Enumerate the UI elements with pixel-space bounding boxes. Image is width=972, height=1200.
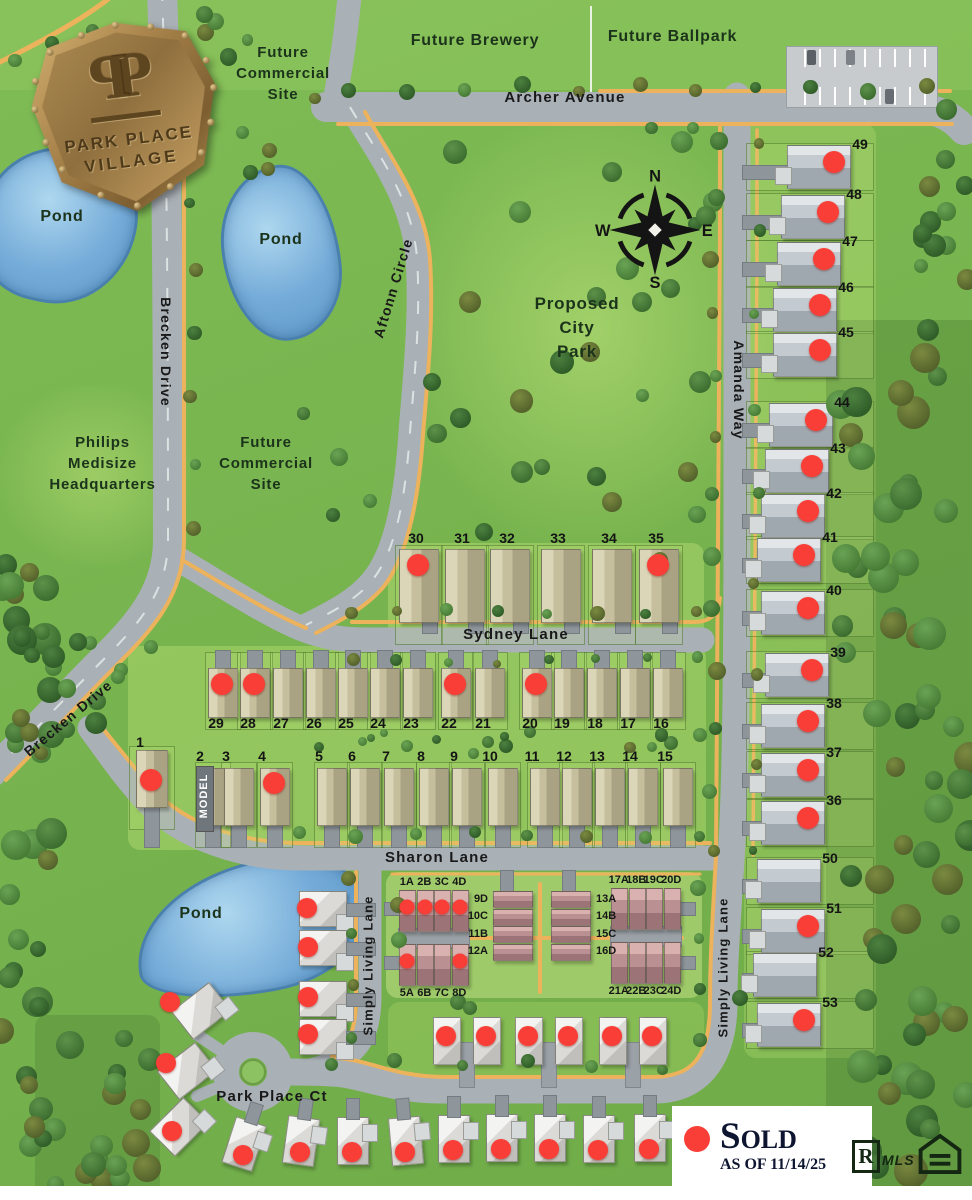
tree [58, 679, 77, 698]
tree [346, 1032, 357, 1043]
tree [122, 1129, 150, 1157]
lot-number: 17 [620, 715, 636, 731]
lot-number: 1 [136, 734, 144, 750]
condo-unit-label: 6B [417, 987, 431, 999]
tree [908, 986, 938, 1016]
sold-dot [435, 900, 450, 915]
tree [458, 83, 471, 96]
tree [710, 370, 722, 382]
sold-dot [797, 759, 819, 781]
tree [910, 343, 940, 373]
area-label-philips-medisize: Philips Medisize Headquarters [10, 432, 195, 495]
tree [347, 653, 360, 666]
lot-house [554, 668, 584, 718]
tree [187, 326, 202, 341]
area-label-future-ballpark: Future Ballpark [595, 26, 750, 48]
condo-unit-label: 4D [452, 876, 466, 888]
condo-unit [646, 942, 663, 984]
home-driveway [346, 1098, 360, 1120]
tree [708, 845, 720, 857]
tree [840, 865, 862, 887]
tree [186, 521, 201, 536]
logo-rivet [77, 31, 85, 39]
tree [367, 734, 375, 742]
lot-house [753, 953, 817, 997]
compass-rose: N E S W [595, 168, 715, 292]
tree [401, 740, 413, 752]
condo-unit-label: 7C [435, 987, 449, 999]
lot-number: 40 [826, 582, 842, 598]
condo-unit-label: 15C [596, 928, 616, 940]
lot-house [338, 668, 368, 718]
tree [36, 818, 67, 849]
house-wing [745, 881, 762, 899]
lot-number: 45 [838, 324, 854, 340]
sold-dot [558, 1026, 578, 1046]
tree [468, 748, 479, 759]
sold-dot [801, 659, 823, 681]
street-label-archer-avenue: Archer Avenue [495, 89, 635, 106]
sold-dot [817, 201, 839, 223]
street-label-sharon-lane: Sharon Lane [367, 849, 507, 866]
tree [694, 983, 706, 995]
tree [916, 684, 941, 709]
house-wing [761, 355, 778, 373]
sold-dot [298, 937, 318, 957]
lot-number: 8 [417, 748, 425, 764]
lot-house [384, 768, 414, 826]
sold-dot [156, 1053, 176, 1073]
tree [693, 728, 707, 742]
site-map: Future Commercial Site Future Brewery Fu… [0, 0, 972, 1200]
tree [509, 201, 531, 223]
condo-unit-label: 2B [417, 876, 431, 888]
lot-number: 6 [348, 748, 356, 764]
model-home-label: MODEL [198, 770, 210, 822]
street-label-amanda-way: Amanda Way [731, 330, 747, 450]
tree [803, 80, 818, 95]
realtor-logo: R [852, 1140, 880, 1173]
tree [326, 508, 340, 522]
tree [936, 99, 957, 120]
tree [24, 648, 40, 664]
tree [262, 143, 277, 158]
compass-s: S [650, 274, 661, 292]
sold-dot [805, 409, 827, 431]
lot-number: 26 [306, 715, 322, 731]
lot-house [595, 768, 625, 826]
legend-sold-dot [684, 1126, 710, 1152]
lot-house [403, 668, 433, 718]
lot-number: 52 [818, 944, 834, 960]
lot-house [350, 768, 380, 826]
tree [925, 771, 944, 790]
tree [936, 150, 955, 169]
lot-house [224, 768, 254, 826]
tree [754, 224, 766, 236]
house-wing [745, 560, 762, 578]
house-wing [769, 217, 786, 235]
lot-number: 30 [408, 530, 424, 546]
lot-number: 2 [196, 748, 204, 764]
tree [947, 769, 972, 799]
tree [690, 880, 706, 896]
tree [880, 612, 907, 639]
legend-sold-label: Sold [720, 1118, 826, 1157]
lot-house [370, 668, 400, 718]
street-label-sydney-lane: Sydney Lane [446, 626, 586, 643]
tree [919, 78, 935, 94]
lot-number: 46 [838, 279, 854, 295]
tree [924, 794, 953, 823]
lot-number: 49 [852, 136, 868, 152]
condo-unit-label: 9D [474, 893, 488, 905]
condo-driveway [680, 902, 696, 916]
sold-dot [452, 954, 467, 969]
lot-number: 10 [482, 748, 498, 764]
area-label-future-brewery: Future Brewery [400, 30, 550, 52]
tree [0, 967, 20, 988]
tree [510, 389, 534, 413]
tree [12, 709, 30, 727]
house-wing [761, 310, 778, 328]
condo-driveway [384, 956, 400, 970]
sold-dot [602, 1026, 622, 1046]
sold-dot [793, 1009, 815, 1031]
lot-number: 33 [550, 530, 566, 546]
sold-dot [417, 900, 432, 915]
tree [133, 1154, 160, 1181]
sold-dot [518, 1026, 538, 1046]
house-wing [749, 931, 766, 949]
tree [106, 1155, 127, 1176]
tree [144, 640, 158, 654]
parcel-divider [590, 6, 592, 92]
sold-dot [395, 1142, 415, 1162]
tree [913, 617, 946, 650]
condo-unit [629, 942, 646, 984]
street-label-simply-living-lane-east: Simply Living Lane [716, 893, 731, 1043]
lot-driveway [144, 804, 160, 848]
tree [463, 1001, 477, 1015]
condo-unit [664, 888, 681, 930]
sold-dot [162, 1121, 182, 1141]
sold-dot [491, 1139, 511, 1159]
tree [363, 494, 377, 508]
lot-number: 11 [525, 748, 540, 764]
logo-rivet [147, 23, 155, 31]
tree [636, 389, 649, 402]
lot-house [530, 768, 560, 826]
lot-number: 47 [842, 233, 858, 249]
house-wing [749, 775, 766, 793]
area-label-pond-southwest: Pond [166, 903, 236, 925]
tree [348, 829, 363, 844]
tree [29, 997, 49, 1017]
car [807, 50, 816, 65]
tree [521, 830, 533, 842]
lot-house [488, 768, 518, 826]
condo-unit [493, 909, 533, 926]
area-label-future-commercial-west: Future Commercial Site [196, 432, 336, 495]
sold-dot [797, 500, 819, 522]
lot-house [452, 768, 482, 826]
lot-number: 7 [382, 748, 390, 764]
tree [236, 126, 249, 139]
tree [643, 653, 652, 662]
lot-house [475, 668, 505, 718]
condo-unit [493, 926, 533, 943]
tree [913, 841, 940, 868]
condo-unit-label: 11B [468, 928, 488, 940]
condo-unit [434, 944, 451, 986]
tree [913, 224, 932, 243]
tree [953, 1082, 972, 1107]
lot-number: 39 [830, 644, 846, 660]
condo-unit [646, 888, 663, 930]
lot-house [273, 668, 303, 718]
tree [427, 424, 447, 444]
tree [848, 443, 875, 470]
sold-dot [813, 248, 835, 270]
sold-dot [342, 1142, 362, 1162]
street-label-brecken-drive-north: Brecken Drive [158, 292, 174, 412]
tree [707, 307, 718, 318]
lot-house [562, 768, 592, 826]
house-wing [413, 1122, 431, 1141]
tree [42, 645, 65, 668]
car [885, 89, 894, 104]
sold-dot [476, 1026, 496, 1046]
tree [943, 716, 964, 737]
tree [130, 1099, 151, 1120]
tree [459, 291, 481, 313]
sold-dot [436, 1026, 456, 1046]
condo-unit-label: 20D [661, 874, 681, 886]
tree [410, 828, 422, 840]
tree [863, 700, 890, 727]
condo-unit [551, 926, 591, 943]
condo-unit [493, 891, 533, 908]
lot-number: 37 [826, 744, 842, 760]
tree [85, 712, 107, 734]
tree [542, 609, 552, 619]
condo-unit-label: 1A [400, 876, 414, 888]
lot-number: 25 [338, 715, 354, 731]
lot-number: 13 [589, 748, 605, 764]
tree [832, 544, 861, 573]
car [846, 50, 855, 65]
condo-unit-label: 3C [435, 876, 449, 888]
sold-dot [444, 673, 466, 695]
lot-house [620, 668, 650, 718]
condo-unit-label: 5A [400, 987, 414, 999]
sold-dot [452, 900, 467, 915]
tree [387, 1053, 402, 1068]
logo-rivet [31, 77, 39, 85]
tree [703, 547, 721, 565]
lot-house [628, 768, 658, 826]
lot-house [663, 768, 693, 826]
tree [585, 1060, 598, 1073]
condo-unit-label: 13A [596, 893, 616, 905]
tree [38, 850, 58, 870]
lot-number: 4 [258, 748, 266, 764]
tree [443, 140, 467, 164]
home-driveway [447, 1096, 461, 1118]
lot-number: 5 [315, 748, 323, 764]
lot-number: 3 [222, 748, 230, 764]
sold-dot [793, 544, 815, 566]
home-driveway [643, 1095, 657, 1117]
tree [493, 660, 501, 668]
sold-dot [823, 151, 845, 173]
condo-unit-label: 16D [596, 945, 616, 957]
lot-number: 28 [240, 715, 256, 731]
legend-as-of-date: AS OF 11/14/25 [720, 1156, 826, 1174]
lot-number: 44 [834, 394, 850, 410]
tree [688, 506, 705, 523]
lot-number: 9 [450, 748, 458, 764]
tree [691, 606, 702, 617]
compass-e: E [702, 222, 713, 240]
lot-number: 34 [601, 530, 617, 546]
sold-dot [525, 673, 547, 695]
lot-house [317, 768, 347, 826]
park-place-village-logo: PP PARK PLACE VILLAGE [23, 11, 229, 222]
tree [647, 742, 657, 752]
sold-dot [797, 710, 819, 732]
street-label-park-place-ct: Park Place Ct [202, 1088, 342, 1105]
tree [710, 431, 721, 442]
tree [941, 915, 960, 934]
lot-number: 21 [475, 715, 491, 731]
tree [865, 865, 894, 894]
lot-number: 16 [653, 715, 669, 731]
sold-dot [443, 1140, 463, 1160]
area-label-pond-central: Pond [246, 229, 316, 251]
tree [500, 732, 508, 740]
lot-number: 31 [454, 530, 470, 546]
lot-house [306, 668, 336, 718]
condo-unit [417, 944, 434, 986]
tree [645, 122, 658, 135]
tree [956, 176, 972, 194]
tree [391, 932, 407, 948]
lot-number: 51 [826, 900, 842, 916]
home-driveway [395, 1098, 411, 1121]
lot-number: 36 [826, 792, 842, 808]
lot-number: 14 [622, 748, 638, 764]
tree [955, 824, 972, 847]
sold-dot [407, 554, 429, 576]
tree [903, 1023, 926, 1046]
lot-number: 29 [208, 715, 224, 731]
sold-dot [298, 987, 318, 1007]
lot-house [587, 668, 617, 718]
tree [932, 864, 963, 895]
tree [30, 941, 46, 957]
sold-dot [647, 554, 669, 576]
tree [693, 1033, 707, 1047]
tree [115, 1030, 133, 1048]
tree [861, 542, 891, 572]
legend: Sold AS OF 11/14/25 [672, 1106, 872, 1186]
tree [942, 1006, 968, 1032]
house-wing [749, 613, 766, 631]
lot-number: 23 [403, 715, 419, 731]
lot-house [653, 668, 683, 718]
sold-dot [797, 807, 819, 829]
sold-dot [211, 673, 233, 695]
sold-dot [298, 1024, 318, 1044]
house-wing [749, 823, 766, 841]
house-wing [362, 1124, 378, 1142]
lot-number: 43 [830, 440, 846, 456]
sold-dot [809, 294, 831, 316]
tree [348, 979, 359, 990]
sold-dot [797, 597, 819, 619]
lot-house [757, 859, 821, 903]
tree [499, 739, 513, 753]
tree [24, 1116, 45, 1137]
home-driveway [495, 1095, 509, 1117]
compass-n: N [649, 168, 661, 186]
tree [8, 54, 21, 67]
tree [243, 165, 257, 179]
logo-rivet [166, 183, 174, 191]
sold-dot [400, 900, 415, 915]
lot-number: 48 [846, 186, 862, 202]
tree [748, 404, 761, 417]
sold-dot [809, 339, 831, 361]
tree [104, 1073, 126, 1095]
sold-dot [400, 954, 415, 969]
tree [20, 1076, 38, 1094]
lot-number: 22 [441, 715, 457, 731]
lot-number: 42 [826, 485, 842, 501]
bottom-margin [0, 1186, 972, 1200]
lot-number: 24 [370, 715, 386, 731]
lot-number: 38 [826, 695, 842, 711]
tree [705, 487, 719, 501]
house-wing [511, 1121, 527, 1139]
condo-unit-label: 10C [468, 910, 488, 922]
area-label-future-commercial-north: Future Commercial Site [213, 42, 353, 105]
tree [710, 132, 727, 149]
tree [56, 1031, 84, 1059]
tree [847, 1050, 879, 1082]
equal-housing-icon [918, 1132, 962, 1176]
tree [358, 737, 367, 746]
tree [957, 269, 972, 290]
sold-dot [539, 1139, 559, 1159]
lot-house [419, 768, 449, 826]
tree [423, 373, 441, 391]
tree [590, 606, 605, 621]
condo-unit-label: 14B [596, 910, 616, 922]
tree [703, 600, 720, 617]
sold-dot [588, 1140, 608, 1160]
tree [855, 989, 877, 1011]
house-wing [745, 1025, 762, 1043]
sold-dot [140, 769, 162, 791]
tree [69, 633, 87, 651]
sold-dot [160, 992, 180, 1012]
lot-number: 18 [587, 715, 603, 731]
parking-lot [786, 46, 938, 108]
house-wing [608, 1122, 624, 1140]
